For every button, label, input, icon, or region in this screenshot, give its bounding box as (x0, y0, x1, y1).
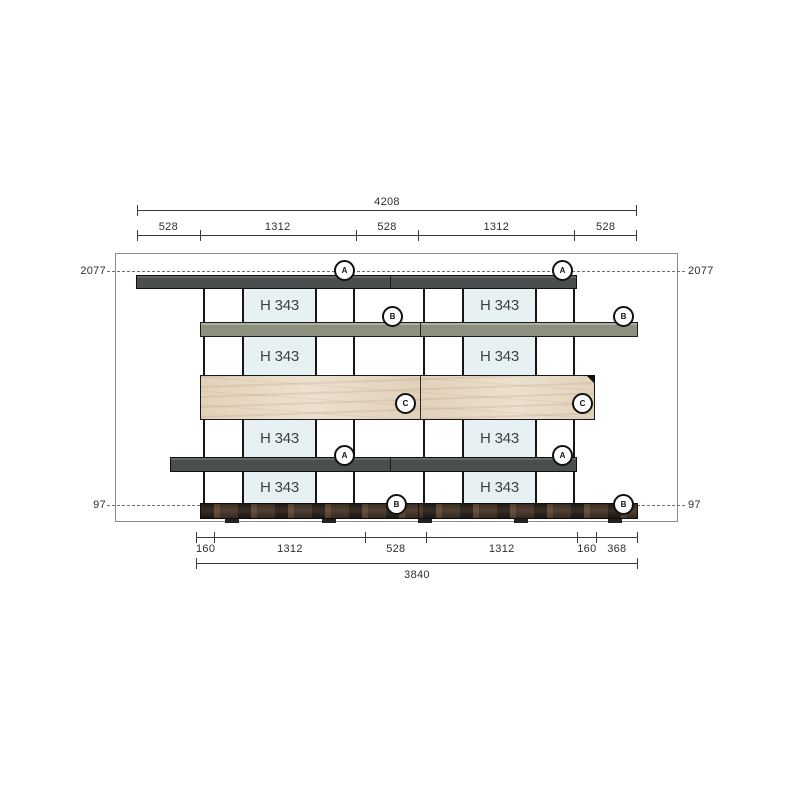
dimension-value: 528 (574, 221, 637, 233)
badge-letter: A (342, 266, 348, 275)
badge-c: C (395, 393, 416, 414)
dimension-segment: 368 (596, 537, 638, 538)
badge-letter: C (403, 399, 409, 408)
badge-b: B (613, 494, 634, 515)
dimension-value: 528 (137, 221, 200, 233)
dimension-value: 528 (365, 543, 426, 555)
height-label-bottom-right: 97 (688, 499, 701, 511)
height-label-bottom-left: 97 (68, 499, 106, 511)
shelf-lower (170, 457, 577, 472)
dimension-segment: 1312 (418, 235, 574, 236)
badge-letter: B (621, 500, 627, 509)
height-label-top-left: 2077 (68, 265, 106, 277)
shelf-middle (200, 322, 638, 337)
corner-mark (586, 375, 595, 384)
shelf-seam (420, 322, 421, 337)
badge-letter: B (390, 312, 396, 321)
badge-letter: B (394, 500, 400, 509)
dimension-value: 1312 (200, 221, 356, 233)
dimension-value: 1312 (214, 543, 365, 555)
glass-panel: H 343 (464, 472, 535, 503)
dimension-value: 4208 (137, 196, 637, 208)
badge-letter: A (560, 451, 566, 460)
dimension-value: 3840 (196, 569, 638, 581)
badge-letter: A (342, 451, 348, 460)
dimension-segment: 160 (577, 537, 595, 538)
badge-c: C (572, 393, 593, 414)
dimension-segment: 1312 (200, 235, 356, 236)
dimension-value: 368 (596, 543, 638, 555)
glass-panel: H 343 (464, 289, 535, 322)
badge-letter: C (580, 399, 586, 408)
dimension-segment: 528 (574, 235, 637, 236)
badge-b: B (382, 306, 403, 327)
dimension-segment: 528 (356, 235, 419, 236)
elevation-drawing: 4208 52813125281312528 2077 2077 97 97 H… (0, 0, 800, 800)
badge-a: A (552, 260, 573, 281)
dimension-segment: 160 (196, 537, 214, 538)
wood-seam (420, 375, 421, 420)
badge-a: A (334, 445, 355, 466)
glass-panel: H 343 (244, 289, 315, 322)
glass-panel: H 343 (244, 472, 315, 503)
dimension-segment: 528 (137, 235, 200, 236)
badge-letter: A (560, 266, 566, 275)
badge-letter: B (621, 312, 627, 321)
dimension-value: 528 (356, 221, 419, 233)
glass-panel: H 343 (244, 420, 315, 457)
datum-line-top (107, 271, 685, 272)
dimension-value: 1312 (418, 221, 574, 233)
dimension-segment: 528 (365, 537, 426, 538)
badge-a: A (334, 260, 355, 281)
badge-b: B (613, 306, 634, 327)
dimension-value: 160 (577, 543, 595, 555)
badge-a: A (552, 445, 573, 466)
dimension-value: 160 (196, 543, 214, 555)
glass-panel: H 343 (464, 420, 535, 457)
shelf-seam (390, 275, 391, 289)
dimension-segment: 4208 (137, 210, 637, 211)
shelf-top (136, 275, 577, 289)
dimension-segment: 1312 (214, 537, 365, 538)
badge-b: B (386, 494, 407, 515)
glass-panel: H 343 (464, 337, 535, 375)
plinth-seam (418, 503, 419, 519)
shelf-seam (390, 457, 391, 472)
dimension-segment: 1312 (426, 537, 577, 538)
dimension-segment: 3840 (196, 563, 638, 564)
glass-panel: H 343 (244, 337, 315, 375)
dimension-value: 1312 (426, 543, 577, 555)
height-label-top-right: 2077 (688, 265, 714, 277)
plinth-base (200, 503, 638, 519)
